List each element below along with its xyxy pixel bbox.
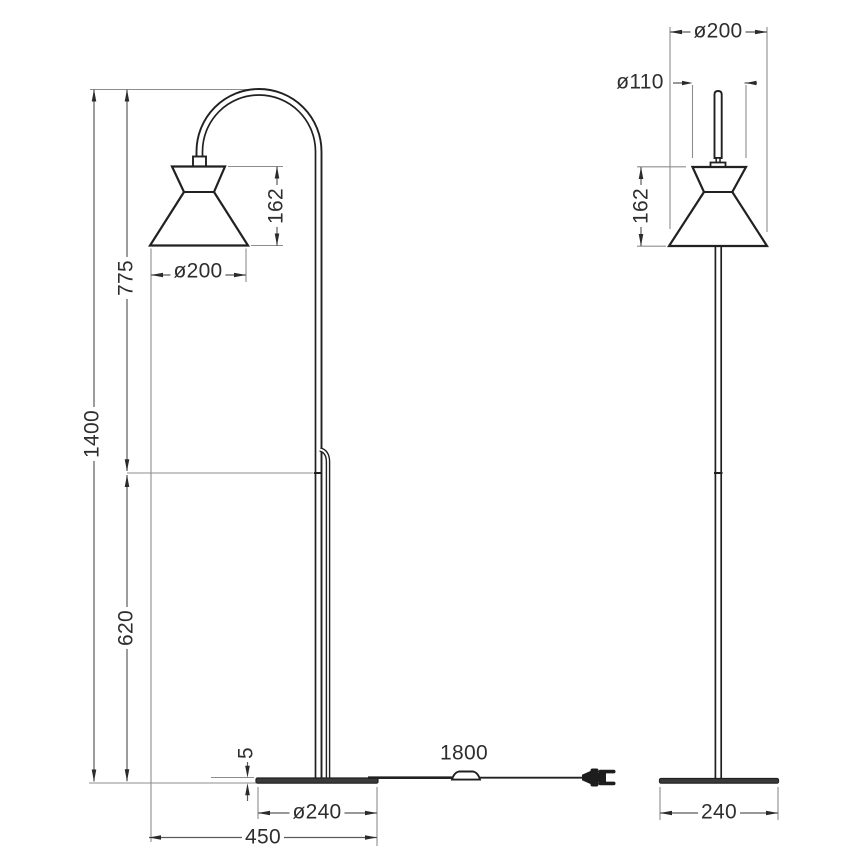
plug-prong-top [599, 770, 616, 774]
power-plug [582, 769, 616, 787]
right-dimension-lines [641, 32, 778, 813]
plug-body-mid [598, 773, 606, 782]
right-lamp-object [660, 91, 779, 783]
left-view [89, 89, 616, 846]
right-view [637, 27, 779, 820]
dim-label-shade-top-diameter: ø110 [613, 70, 667, 95]
technical-drawing-canvas: 1400 775 620 162 ø200 5 1800 ø240 450 ø2… [0, 0, 868, 868]
dim-label-shade-diameter-left: ø200 [170, 259, 225, 284]
right-arrowheads [639, 30, 778, 816]
lamp-base [256, 778, 378, 783]
dim-label-shade-height-left: 162 [264, 185, 289, 227]
plug-body-bar [591, 769, 599, 787]
dim-label-shade-diameter-right: ø200 [690, 19, 745, 44]
left-dimension-lines [94, 90, 377, 838]
dim-label-shade-height-right: 162 [629, 185, 654, 227]
left-arrowheads [92, 90, 377, 840]
dim-label-upper-section-height: 775 [114, 257, 139, 299]
inline-switch [452, 772, 480, 780]
left-lamp-object [150, 89, 616, 787]
plug-prong-bottom [599, 782, 616, 786]
lamp-base [660, 779, 779, 784]
left-extension-lines [89, 90, 377, 847]
stem-rod [715, 91, 722, 158]
arm-inner-tube-line [203, 95, 316, 779]
lamp-shade [669, 167, 767, 246]
right-extension-lines [637, 27, 778, 820]
lamp-shade [150, 167, 248, 246]
plug-tail [582, 771, 591, 784]
dim-label-overall-depth: 450 [242, 825, 284, 850]
dim-label-base-diameter: ø240 [289, 800, 344, 825]
drawing-geometry [0, 0, 868, 868]
dim-label-overall-height: 1400 [80, 407, 105, 461]
shade-stem-connector [193, 157, 206, 167]
dim-label-base-width: 240 [698, 800, 740, 825]
dim-label-lower-section-height: 620 [114, 607, 139, 649]
dim-label-cable-length: 1800 [437, 741, 491, 766]
dim-label-base-thickness: 5 [234, 744, 259, 762]
